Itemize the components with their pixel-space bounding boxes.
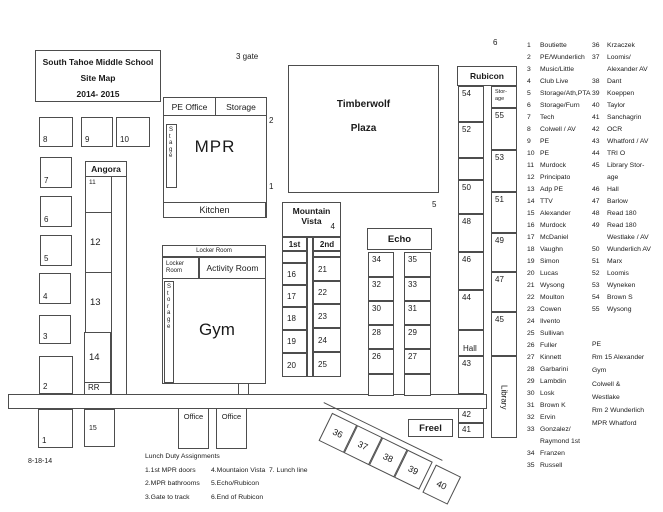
room-25: 25 <box>313 352 341 377</box>
legend-room-number: 46 <box>592 184 607 196</box>
room-43: 43 <box>458 356 484 394</box>
legend-entry: 41 Sanchagrin <box>592 112 663 124</box>
legend-teacher-name: PE <box>540 136 591 148</box>
legend-room-number: 36 <box>592 40 607 52</box>
lunch-duty-rows: 1.1st MPR doors 4.Mountaion Vista 7. Lun… <box>145 464 380 505</box>
legend-entry: 1 Boutiette <box>527 40 591 52</box>
room-28: 28 <box>368 325 394 349</box>
legend-teacher-name: TTV <box>540 196 591 208</box>
room-19: 19 <box>282 330 307 353</box>
legend-teacher-name: Ilvento <box>540 316 591 328</box>
kitchen: Kitchen <box>163 202 266 218</box>
legend-col2: 36 Krzaczek 37 Loomis/ Alexander AV 38 D… <box>592 40 663 316</box>
legend-entry: 37 Loomis/ Alexander AV <box>592 52 663 76</box>
lunch-duty-row: 2.MPR bathrooms 5.Echo/Rubicon <box>145 477 380 491</box>
legend-room-number: 50 <box>592 244 607 256</box>
legend-room-number: 16 <box>527 220 540 232</box>
activity-room: Activity Room <box>199 257 266 279</box>
room-35: 35 <box>404 252 431 277</box>
legend-entry: 11 Murdock <box>527 160 591 172</box>
legend-entry: 55 Wysong <box>592 304 663 316</box>
legend-teacher-name: Dant <box>607 76 663 88</box>
room-23: 23 <box>313 304 341 328</box>
hall-label: Hall <box>458 330 484 356</box>
room-1: 1 <box>38 409 73 448</box>
room-53: 53 <box>491 150 517 192</box>
legend-entry: 2 PE/Wunderlich <box>527 52 591 64</box>
legend-teacher-name: Kinnett <box>540 352 591 364</box>
room-20: 20 <box>282 353 307 377</box>
legend-teacher-name: Losk <box>540 388 591 400</box>
pe-office: PE Office <box>163 97 216 116</box>
legend-teacher-name: Ervin <box>540 412 591 424</box>
legend-teacher-name: Murdock <box>540 220 591 232</box>
legend-teacher-name: TRI O <box>607 148 663 160</box>
legend-room-number: 53 <box>592 280 607 292</box>
mpr-storage: Storage <box>215 97 267 116</box>
room-26: 26 <box>368 349 394 374</box>
lunch-duty-cell: 4.Mountaion Vista <box>211 464 269 478</box>
legend-entry: 36 Krzaczek <box>592 40 663 52</box>
room-31: 31 <box>404 301 431 325</box>
legend-entry: 52 Loomis <box>592 268 663 280</box>
locker-room-left: Locker Room <box>162 257 199 279</box>
legend-room-number: 48 <box>592 208 607 220</box>
legend-entry: 35 Russell <box>527 460 591 472</box>
room-44: 44 <box>458 290 484 330</box>
library: Library <box>491 356 517 438</box>
room-48: 48 <box>458 214 484 252</box>
echo-blank-right <box>404 374 431 396</box>
legend-room-number: 28 <box>527 364 540 376</box>
mountain-vista-line1: Mountain <box>283 203 340 216</box>
legend-teacher-name: Storage/Ath,PTA <box>540 88 591 100</box>
lunch-duty-cell: 6.End of Rubicon <box>211 491 269 505</box>
legend-teacher-name: Wunderlich AV <box>607 244 663 256</box>
legend-room-number: 45 <box>592 160 607 184</box>
legend-entry: 43 Whatford / AV <box>592 136 663 148</box>
building-rubicon-header: Rubicon <box>457 66 517 86</box>
room-54: 54 <box>458 86 484 122</box>
legend-entry: 6 Storage/Furn <box>527 100 591 112</box>
legend-entry: 45 Library Stor- age <box>592 160 663 184</box>
legend-room-number: 8 <box>527 124 540 136</box>
station-1-label: 1 <box>269 182 273 191</box>
legend-teacher-name: PE/Wunderlich <box>540 52 591 64</box>
room-51: 51 <box>491 192 517 233</box>
building-freel-header: Freel <box>408 419 453 437</box>
legend-teacher-name: Adp PE <box>540 184 591 196</box>
legend-room-number: 4 <box>527 76 540 88</box>
legend-room-number: 51 <box>592 256 607 268</box>
mv-1st-header: 1st <box>282 237 307 251</box>
legend-entry: 18 Vaughn <box>527 244 591 256</box>
legend-entry: 20 Lucas <box>527 268 591 280</box>
legend-entry: 7 Tech <box>527 112 591 124</box>
legend-room-number: 40 <box>592 100 607 112</box>
mv-2nd-header: 2nd <box>313 237 341 251</box>
title-box: South Tahoe Middle School Site Map 2014-… <box>35 50 161 102</box>
legend-room-number: 23 <box>527 304 540 316</box>
legend-entry: 47 Barlow <box>592 196 663 208</box>
legend-teacher-name: Moulton <box>540 292 591 304</box>
legend-room-number: 55 <box>592 304 607 316</box>
legend-entry: 40 Taylor <box>592 100 663 112</box>
legend-teacher-name: Lucas <box>540 268 591 280</box>
room-32: 32 <box>368 277 394 301</box>
legend-teacher-name: Gonzalez/ Raymond 1st <box>540 424 591 448</box>
room-9: 9 <box>81 117 113 147</box>
room-2: 2 <box>39 356 73 394</box>
legend-room-number: 21 <box>527 280 540 292</box>
legend-entry: 22 Moulton <box>527 292 591 304</box>
room-10: 10 <box>116 117 150 147</box>
legend-entry: 29 Lambdin <box>527 376 591 388</box>
legend-room-number: 6 <box>527 100 540 112</box>
legend-room-number: 18 <box>527 244 540 256</box>
legend-entry: 25 Sullivan <box>527 328 591 340</box>
room-17: 17 <box>282 285 307 307</box>
gate-3-label: 3 gate <box>236 52 258 61</box>
legend-entry: 34 Franzen <box>527 448 591 460</box>
lunch-duty-cell: 3.Gate to track <box>145 491 211 505</box>
legend-entry: 38 Dant <box>592 76 663 88</box>
room-14: 14 <box>84 332 111 383</box>
legend-teacher-name: Alexander <box>540 208 591 220</box>
legend-entry: 14 TTV <box>527 196 591 208</box>
legend-room-number: 15 <box>527 208 540 220</box>
room-42: 42 <box>458 408 484 423</box>
lunch-duty-cell: 2.MPR bathrooms <box>145 477 211 491</box>
lunch-duty-cell: 7. Lunch line <box>269 464 380 478</box>
legend-entry: 26 Fuller <box>527 340 591 352</box>
legend-teacher-name: Boutiette <box>540 40 591 52</box>
legend-entry: 48 Read 180 <box>592 208 663 220</box>
legend-entry: 31 Brown K <box>527 400 591 412</box>
legend-teacher-name: Sullivan <box>540 328 591 340</box>
legend-room-number: 33 <box>527 424 540 448</box>
office-2: Office <box>216 408 247 449</box>
legend-room-number: 43 <box>592 136 607 148</box>
legend-entry: 3 Music/Little <box>527 64 591 76</box>
legend-teacher-name: Lambdin <box>540 376 591 388</box>
school-name: South Tahoe Middle School <box>36 54 160 70</box>
legend-teacher-name: Colwell / AV <box>540 124 591 136</box>
locker-room-top: Locker Room <box>162 245 266 257</box>
timberwolf-line1: Timberwolf <box>337 99 390 110</box>
legend-teacher-name: Krzaczek <box>607 40 663 52</box>
legend-teacher-name: Koeppen <box>607 88 663 100</box>
lunch-duty-cell: 1.1st MPR doors <box>145 464 211 478</box>
room-24: 24 <box>313 328 341 352</box>
legend-entry: 24 Ilvento <box>527 316 591 328</box>
legend-teacher-name: Read 180 Westlake / AV <box>607 220 663 244</box>
timberwolf-line2: Plaza <box>351 123 377 134</box>
room-7: 7 <box>40 157 72 188</box>
legend-teacher-name: Wysong <box>607 304 663 316</box>
room-5: 5 <box>40 235 72 266</box>
room-33: 33 <box>404 277 431 301</box>
legend-teacher-name: Brown K <box>540 400 591 412</box>
echo-blank-left <box>368 374 394 396</box>
legend-room-number: 32 <box>527 412 540 424</box>
legend-teacher-name: Principato <box>540 172 591 184</box>
legend-teacher-name: Simon <box>540 256 591 268</box>
room-47: 47 <box>491 272 517 312</box>
lunch-duty-block: Lunch Duty Assignments 1.1st MPR doors 4… <box>145 450 380 504</box>
room-6: 6 <box>40 196 72 227</box>
legend-room-number: 24 <box>527 316 540 328</box>
legend-room-number: 47 <box>592 196 607 208</box>
legend-room-number: 41 <box>592 112 607 124</box>
mv-blank-1st <box>282 251 307 263</box>
legend-entry: 5 Storage/Ath,PTA <box>527 88 591 100</box>
legend-room-number: 37 <box>592 52 607 76</box>
legend-entry: 39 Koeppen <box>592 88 663 100</box>
room-27: 27 <box>404 349 431 374</box>
legend-room-number: 34 <box>527 448 540 460</box>
legend-room-number: 44 <box>592 148 607 160</box>
legend-entry: 33 Gonzalez/ Raymond 1st <box>527 424 591 448</box>
angora-corridor <box>111 176 127 395</box>
legend-entry: 28 Garbarini <box>527 364 591 376</box>
lunch-duty-row: 3.Gate to track 6.End of Rubicon <box>145 491 380 505</box>
legend-room-number: 29 <box>527 376 540 388</box>
legend-extra-block: PE Rm 15 Alexander Gym Colwell & Westlak… <box>592 338 663 430</box>
room-50: 50 <box>458 180 484 214</box>
legend-teacher-name: Loomis <box>607 268 663 280</box>
legend-room-number: 25 <box>527 328 540 340</box>
gym-label: Gym <box>172 320 262 340</box>
legend-room-number: 2 <box>527 52 540 64</box>
legend-room-number: 26 <box>527 340 540 352</box>
legend-entry: 17 McDaniel <box>527 232 591 244</box>
room-3: 3 <box>39 315 71 344</box>
legend-room-number: 39 <box>592 88 607 100</box>
legend-entry: 13 Adp PE <box>527 184 591 196</box>
legend-teacher-name: Loomis/ Alexander AV <box>607 52 663 76</box>
legend-entry: 16 Murdock <box>527 220 591 232</box>
room-52: 52 <box>458 122 484 158</box>
legend-teacher-name: OCR <box>607 124 663 136</box>
legend-entry: 50 Wunderlich AV <box>592 244 663 256</box>
room-29: 29 <box>404 325 431 349</box>
library-label: Library <box>500 385 509 409</box>
legend-teacher-name: Wysong <box>540 280 591 292</box>
rubicon-storage: Stor- age <box>491 86 517 108</box>
room-41: 41 <box>458 423 484 438</box>
lunch-duty-row: 1.1st MPR doors 4.Mountaion Vista 7. Lun… <box>145 464 380 478</box>
legend-teacher-name: Murdock <box>540 160 591 172</box>
legend-teacher-name: Taylor <box>607 100 663 112</box>
school-year: 2014- 2015 <box>36 86 160 102</box>
mpr-label: MPR <box>163 137 267 157</box>
legend-teacher-name: Russell <box>540 460 591 472</box>
legend-entry: 30 Losk <box>527 388 591 400</box>
room-11: 11 <box>85 176 112 213</box>
room-46: 46 <box>458 252 484 290</box>
legend-entry: 9 PE <box>527 136 591 148</box>
legend-teacher-name: McDaniel <box>540 232 591 244</box>
legend-entry: 8 Colwell / AV <box>527 124 591 136</box>
legend-teacher-name: Cowen <box>540 304 591 316</box>
room-16: 16 <box>282 263 307 285</box>
legend-room-number: 42 <box>592 124 607 136</box>
legend-teacher-name: Vaughn <box>540 244 591 256</box>
legend-room-number: 14 <box>527 196 540 208</box>
legend-entry: 49 Read 180 Westlake / AV <box>592 220 663 244</box>
station-2-label: 2 <box>269 116 273 125</box>
legend-room-number: 1 <box>527 40 540 52</box>
room-8: 8 <box>39 117 73 147</box>
lunch-duty-cell <box>269 491 380 505</box>
legend-col1: 1 Boutiette 2 PE/Wunderlich 3 Music/Litt… <box>527 40 591 472</box>
legend-room-number: 27 <box>527 352 540 364</box>
legend-teacher-name: Storage/Furn <box>540 100 591 112</box>
legend-entry: 23 Cowen <box>527 304 591 316</box>
building-mountain-vista-header: Mountain Vista 4 <box>282 202 341 237</box>
legend-room-number: 38 <box>592 76 607 88</box>
legend-teacher-name: Read 180 <box>607 208 663 220</box>
room-13: 13 <box>85 272 112 333</box>
legend-room-number: 9 <box>527 136 540 148</box>
legend-entry: 53 Wyneken <box>592 280 663 292</box>
legend-room-number: 7 <box>527 112 540 124</box>
legend-entry: 4 Club Live <box>527 76 591 88</box>
legend-room-number: 35 <box>527 460 540 472</box>
legend-teacher-name: Sanchagrin <box>607 112 663 124</box>
room-22: 22 <box>313 281 341 304</box>
legend-entry: 44 TRI O <box>592 148 663 160</box>
office-1: Office <box>178 408 209 449</box>
legend-teacher-name: Library Stor- age <box>607 160 663 184</box>
legend-teacher-name: Hall <box>607 184 663 196</box>
room-12: 12 <box>85 212 112 273</box>
legend-teacher-name: Franzen <box>540 448 591 460</box>
legend-room-number: 12 <box>527 172 540 184</box>
rubicon-blank <box>458 158 484 180</box>
room-34: 34 <box>368 252 394 277</box>
legend-room-number: 49 <box>592 220 607 244</box>
legend-entry: 10 PE <box>527 148 591 160</box>
legend-room-number: 22 <box>527 292 540 304</box>
legend-teacher-name: Brown S <box>607 292 663 304</box>
legend-teacher-name: Marx <box>607 256 663 268</box>
room-45: 45 <box>491 312 517 356</box>
legend-room-number: 30 <box>527 388 540 400</box>
station-5-label: 5 <box>432 200 436 209</box>
room-49: 49 <box>491 233 517 272</box>
legend-teacher-name: Tech <box>540 112 591 124</box>
station-4-label: 4 <box>331 222 335 231</box>
legend-entry: 51 Marx <box>592 256 663 268</box>
legend-room-number: 20 <box>527 268 540 280</box>
legend-entry: 42 OCR <box>592 124 663 136</box>
legend-room-number: 52 <box>592 268 607 280</box>
legend-entry: 27 Kinnett <box>527 352 591 364</box>
lunch-duty-title: Lunch Duty Assignments <box>145 450 380 464</box>
room-18: 18 <box>282 307 307 330</box>
room-30: 30 <box>368 301 394 325</box>
room-21: 21 <box>313 257 341 281</box>
date-label: 8-18-14 <box>28 458 52 465</box>
legend-teacher-name: Fuller <box>540 340 591 352</box>
room-4: 4 <box>39 273 71 304</box>
legend-room-number: 19 <box>527 256 540 268</box>
legend-entry: 21 Wysong <box>527 280 591 292</box>
legend-entry: 12 Principato <box>527 172 591 184</box>
legend-teacher-name: PE <box>540 148 591 160</box>
building-angora-header: Angora <box>85 161 127 177</box>
legend-room-number: 10 <box>527 148 540 160</box>
legend-teacher-name: Club Live <box>540 76 591 88</box>
legend-entry: 54 Brown S <box>592 292 663 304</box>
road <box>8 394 487 409</box>
legend-room-number: 54 <box>592 292 607 304</box>
legend-teacher-name: Whatford / AV <box>607 136 663 148</box>
legend-entry: 32 Ervin <box>527 412 591 424</box>
legend-teacher-name: Garbarini <box>540 364 591 376</box>
legend-room-number: 17 <box>527 232 540 244</box>
map-subtitle: Site Map <box>36 70 160 86</box>
legend-room-number: 31 <box>527 400 540 412</box>
station-6-label: 6 <box>493 38 497 47</box>
legend-entry: 19 Simon <box>527 256 591 268</box>
legend-room-number: 13 <box>527 184 540 196</box>
legend-teacher-name: Wyneken <box>607 280 663 292</box>
legend-teacher-name: Music/Little <box>540 64 591 76</box>
legend-entry: 15 Alexander <box>527 208 591 220</box>
legend-room-number: 3 <box>527 64 540 76</box>
lunch-duty-cell: 5.Echo/Rubicon <box>211 477 269 491</box>
legend-room-number: 11 <box>527 160 540 172</box>
site-map: South Tahoe Middle School Site Map 2014-… <box>0 0 663 512</box>
legend-entry: 46 Hall <box>592 184 663 196</box>
timberwolf-plaza-label: Timberwolf Plaza <box>288 93 439 141</box>
room-15: 15 <box>84 409 115 447</box>
lunch-duty-cell <box>269 477 380 491</box>
legend-room-number: 5 <box>527 88 540 100</box>
room-55: 55 <box>491 108 517 150</box>
building-echo-header: Echo <box>367 228 432 250</box>
legend-teacher-name: Barlow <box>607 196 663 208</box>
